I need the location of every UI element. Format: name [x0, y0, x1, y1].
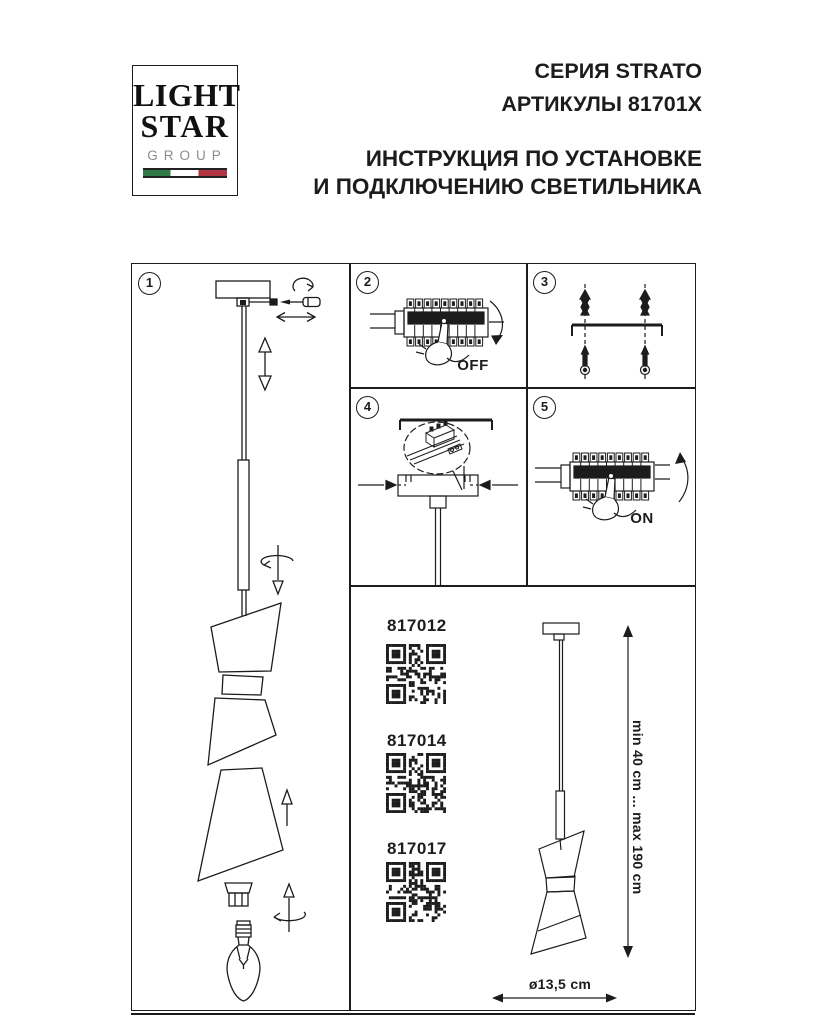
step5-number: 5 [533, 396, 556, 419]
logo-word-light: LIGHT [133, 80, 237, 111]
socket-cap [225, 883, 252, 906]
diameter-label: ø13,5 cm [524, 976, 596, 992]
article-code-817014: 817014 [387, 731, 447, 751]
suspension-rod [430, 496, 446, 585]
canopy [398, 475, 478, 496]
instruction-title: ИНСТРУКЦИЯ ПО УСТАНОВКЕ И ПОДКЛЮЧЕНИЮ СВ… [313, 145, 702, 201]
qr-code-icon [386, 753, 446, 813]
qr-code-icon [386, 862, 446, 922]
switch-on-arrow-icon [675, 452, 688, 502]
shade-upper-cone [208, 603, 281, 765]
logo-word-group: GROUP [137, 148, 237, 163]
diameter-dimension-arrow-icon [492, 994, 617, 1003]
side-screw-arrow-icon [358, 481, 518, 490]
italian-flag-stripe [143, 168, 227, 178]
qr-code-icon [386, 644, 446, 704]
article-code-817017: 817017 [387, 839, 447, 859]
screwdriver-icon [280, 298, 320, 307]
instruction-title-line1: ИНСТРУКЦИЯ ПО УСТАНОВКЕ [313, 145, 702, 173]
rotate-arrow-icon [293, 278, 313, 291]
detail-balloon [404, 422, 470, 490]
step4-number: 4 [356, 396, 379, 419]
rotate-socket-icon [274, 884, 305, 932]
article-code-817012: 817012 [387, 616, 447, 636]
alignment-dashes [585, 284, 645, 382]
set-screw [249, 299, 277, 305]
next-section-rule [131, 1013, 695, 1015]
series-title: СЕРИЯ STRATO [313, 60, 702, 82]
instruction-sheet: LIGHT STAR GROUP СЕРИЯ STRATO АРТИКУЛЫ 8… [0, 0, 826, 1024]
light-bulb-icon [227, 921, 260, 1001]
articles-title: АРТИКУЛЫ 81701X [313, 93, 702, 115]
lightstar-logo: LIGHT STAR GROUP [132, 65, 238, 196]
step1-lamp-assembly-drawing [132, 264, 349, 1010]
step2-number: 2 [356, 271, 379, 294]
suspension-rod [238, 306, 249, 616]
slide-arrow-icon [277, 313, 315, 322]
step4-canopy-wiring-drawing [350, 389, 526, 585]
screw-icon [581, 346, 650, 375]
rotate-cord-icon [261, 545, 293, 594]
terminal-block-detail [407, 421, 464, 464]
step1-number: 1 [138, 272, 161, 295]
assemble-up-arrow-icon [282, 790, 292, 826]
switch-off-arrow-icon [490, 301, 503, 345]
steps-grid: 1 2 3 4 5 OFF ON 817012 817014 817017 mi… [131, 263, 696, 1011]
wall-anchor-icon [580, 290, 650, 315]
off-label: OFF [448, 357, 498, 374]
height-adjust-arrow-icon [259, 338, 271, 390]
step3-number: 3 [533, 271, 556, 294]
header-text: СЕРИЯ STRATO АРТИКУЛЫ 81701X ИНСТРУКЦИЯ … [313, 60, 702, 201]
pendant-lamp-drawing [531, 623, 586, 954]
shade-lower-cone [198, 768, 283, 881]
logo-word-star: STAR [133, 111, 237, 142]
suspension-range-label: min 40 cm ... max 190 cm [630, 720, 646, 872]
step5-power-on-drawing [527, 389, 695, 585]
instruction-title-line2: И ПОДКЛЮЧЕНИЮ СВЕТИЛЬНИКА [313, 173, 702, 201]
on-label: ON [620, 510, 664, 527]
